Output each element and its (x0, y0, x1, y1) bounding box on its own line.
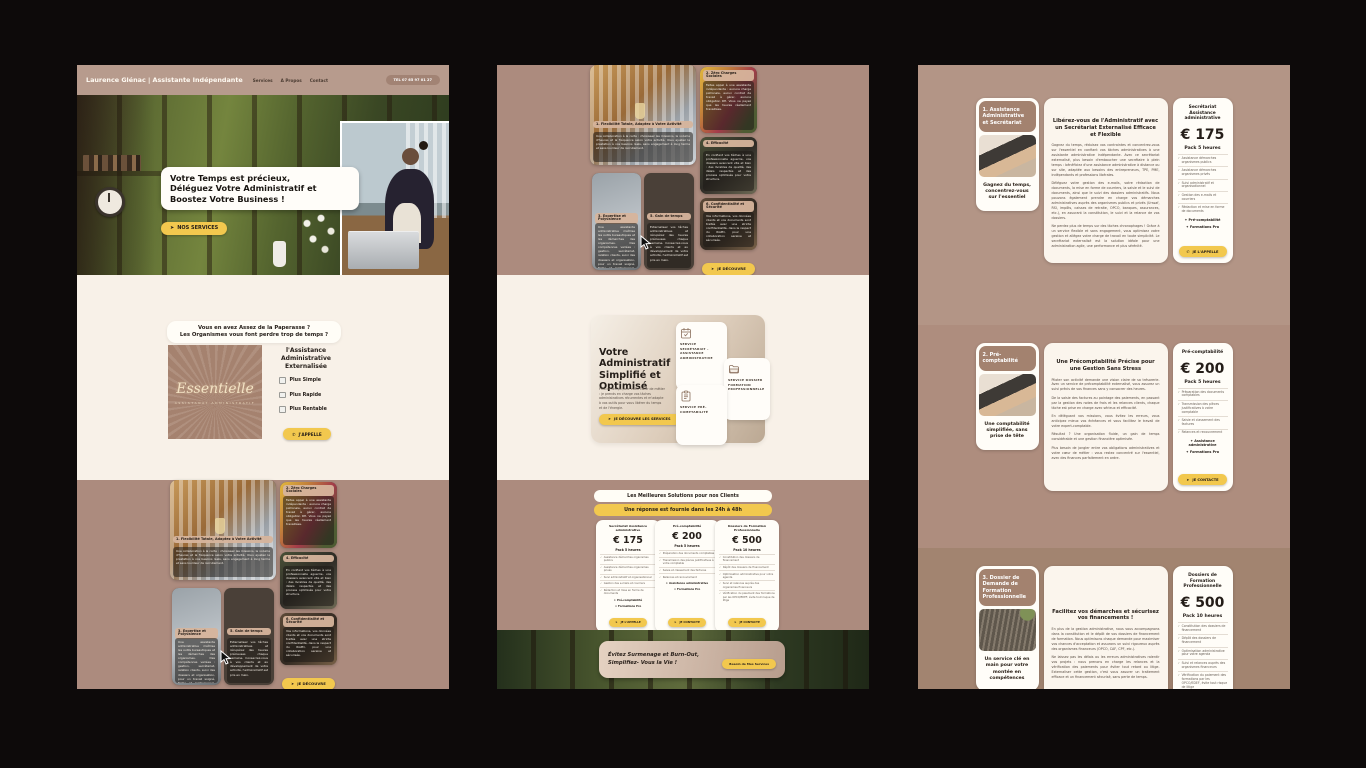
pricing-price: € 175 (600, 535, 656, 546)
keyboard-photo (979, 135, 1036, 177)
benefit-text: Vos informations, vos données clients et… (703, 212, 754, 247)
pricing-cta-button[interactable]: ➤JE CONTACTE (668, 618, 706, 627)
check-icon: ✓ (600, 566, 602, 572)
pricing-feature-list: ✓Assistance démarches organismes publics… (600, 554, 656, 597)
pricing-feature: ✓Dépôt des dossiers de financement (719, 564, 775, 571)
main-nav: Services A Propos Contact (253, 78, 328, 83)
benefit-card-1: 1. Flexibilité Totale, Adaptez à Votre A… (170, 480, 276, 580)
nav-contact[interactable]: Contact (310, 78, 328, 83)
benefit-row: Plus Simple (279, 377, 337, 384)
plane-icon: ➤ (1186, 478, 1189, 482)
mouse-cursor-icon (640, 235, 651, 250)
books-decor (83, 155, 141, 171)
je-decouvre-button[interactable]: ➤JE DÉCOUVRE (702, 263, 755, 275)
pricing-feature: ✓Rédaction et mise en forme de documents (1178, 203, 1228, 215)
pricing-extra: ✦ Formations Pro (659, 587, 715, 591)
plane-icon: ➤ (608, 417, 611, 421)
pricing-extra-list: ✦ Assistance administrative✦ Formations … (1178, 437, 1228, 454)
pricing-extra-list: ✦ Pré-comptabilité✦ Formations Pro (1178, 216, 1228, 229)
detail-left-card: 3. Dossier de Demande de Formation Profe… (976, 566, 1039, 689)
detail-paragraph: Résultat ? Une organisation fluide, un g… (1052, 432, 1160, 442)
pricing-feature: ✓Constitution des dossiers de financemen… (1178, 622, 1228, 634)
benefit-card-6: 6. Confidentialité et SécuritéVos inform… (280, 613, 337, 665)
pricing-card-secretariat: Secrétariat Assistance administrative € … (596, 520, 660, 632)
pricing-cta-wrap: ✆JE L'APPELLE (1179, 238, 1227, 258)
plane-icon: ➤ (711, 266, 714, 271)
benefit-title: 1. Flexibilité Totale, Adaptez à Votre A… (593, 121, 693, 128)
pricing-pack: Pack 10 heures (1178, 614, 1228, 619)
pricing-feature: ✓Optimisation administrative pour votre … (1178, 647, 1228, 659)
detail-paragraph: Ne perdez plus de temps sur des tâches c… (1052, 224, 1160, 249)
benefit-card-6: 6. Confidentialité et SécuritéVos inform… (700, 198, 757, 250)
detail-caption: Gagnez du temps, concentrez-vous sur l'e… (979, 177, 1036, 208)
benefit-label: Plus Rapide (290, 393, 322, 398)
benefit-title: 5. Gain de temps (227, 628, 271, 635)
pricing-feature-list: ✓Préparation des documents comptables✓Tr… (659, 550, 715, 580)
response-time-banner: Une réponse est fournie dans les 24h à 4… (594, 504, 772, 516)
je-lappelle-button[interactable]: ✆JE L'APPELLE (1179, 246, 1227, 257)
call-cta-wrap: ✆J'APPELLE (275, 421, 337, 441)
pricing-feature: ✓Transmission des pièces justificatives … (1178, 400, 1228, 416)
brand-title: Laurence Glénac | Assistante Indépendant… (86, 76, 243, 84)
solutions-heading: Les Meilleures Solutions pour nos Client… (594, 490, 772, 502)
benefit-row: Plus Rentable (279, 406, 337, 413)
detail-paragraph: Ne laissez pas les délais ou les erreurs… (1052, 655, 1160, 680)
benefit-text: Une assistante administrative maîtrise l… (595, 223, 638, 268)
pricing-feature: ✓Assistance démarches organismes privés (600, 564, 656, 574)
check-icon: ✓ (600, 576, 602, 579)
je-decouvre-services-label: JE DÉCOUVRE LES SERVICES (614, 417, 671, 421)
je-decouvre-button[interactable]: ➤JE DÉCOUVRE (282, 678, 335, 690)
detail-paragraph: De la saisie des factures au pointage de… (1052, 396, 1160, 411)
benefits-grid: 1. Flexibilité Totale, Adaptez à Votre A… (170, 480, 338, 689)
papers-photo (979, 609, 1036, 651)
screenshot-services: 1. Flexibilité Totale, Adaptez à Votre A… (497, 65, 869, 689)
check-icon: ✓ (1178, 157, 1181, 165)
detail-paragraphs: Piloter son activité demande une vision … (1052, 378, 1160, 465)
detail-caption: Une comptabilité simplifiée, sans prise … (979, 416, 1036, 447)
clock-decor (95, 187, 125, 217)
pricing-feature: ✓Vérification du paiement des formations… (1178, 671, 1228, 689)
check-icon: ✓ (1178, 391, 1181, 399)
laptop-decor (348, 232, 419, 269)
service-card-label: SERVICE DOSSIER FORMATION PROFESSIONNELL… (728, 378, 766, 392)
benefit-text: Une collaboration à la carte : choisisse… (173, 547, 273, 577)
pricing-cta-wrap: ➤JE L'APPELLE (609, 608, 647, 627)
benefit-text: Externalisez vos tâches administratives … (227, 638, 271, 683)
benefit-text: En confiant vos tâches à une professionn… (283, 566, 334, 606)
benefits-grid: 1. Flexibilité Totale, Adaptez à Votre A… (590, 65, 758, 275)
footer-cta-wrap: Besoin de Mes Services (722, 650, 776, 669)
detail-badge: 2. Pré-comptabilité (979, 346, 1036, 371)
check-icon: ✓ (1178, 182, 1181, 190)
benefit-title: 2. Zéro Charges Sociales (283, 485, 334, 496)
benefit-card-5: 5. Gain de tempsExternalisez vos tâches … (224, 588, 274, 685)
pricing-extra: ✦ Formations Pro (1178, 225, 1228, 229)
pricing-pack: Pack 5 heures (1178, 380, 1228, 385)
detail-paragraph: Plus besoin de jongler entre vos obligat… (1052, 446, 1160, 461)
benefits-collage-section: 1. Flexibilité Totale, Adaptez à Votre A… (77, 480, 449, 689)
pricing-extra: ✦ Assistance administrative (659, 581, 715, 585)
check-icon: ✓ (719, 566, 721, 569)
pricing-feature: ✓Suivi et relances auprès des organismes… (1178, 659, 1228, 671)
pricing-feature: ✓Suivi administratif et organisationnel (1178, 179, 1228, 191)
pricing-extra: ✦ Assistance administrative (1178, 439, 1228, 447)
check-icon: ✓ (719, 573, 721, 579)
check-icon: ✓ (1178, 419, 1181, 427)
benefit-text: Vos informations, vos données clients et… (283, 627, 334, 662)
mouse-cursor-icon (220, 650, 231, 665)
benefit-card-3: 3. Expertise et PolyvalenceUne assistant… (592, 173, 641, 270)
pricing-feature-list: ✓Préparation des documents comptables✓Tr… (1178, 388, 1228, 437)
detail-left-card: 1. Assistance Administrative et Secrétar… (976, 98, 1039, 211)
folder-icon (728, 363, 740, 375)
pricing-card-formation: Dossiers de Formation Professionnelle € … (715, 520, 779, 632)
check-icon: ✓ (1178, 403, 1181, 415)
detail-paragraph: Gagnez du temps, réduisez vos contrainte… (1052, 143, 1160, 178)
check-icon: ✓ (719, 582, 721, 588)
pricing-feature: ✓Saisie et classement des factures (1178, 416, 1228, 428)
pricing-pack: Pack 5 heures (600, 548, 656, 552)
pricing-extra: ✦ Pré-comptabilité (1178, 218, 1228, 222)
pricing-card-precompta: Pré-comptabilité € 200 Pack 5 heures ✓Pr… (655, 520, 719, 632)
pricing-feature: ✓Suivi et relances auprès des organismes… (719, 580, 775, 590)
checkbox-icon (279, 377, 286, 384)
hero-shelf-decor (77, 95, 155, 275)
check-icon: ✓ (1178, 194, 1181, 202)
jappelle-button[interactable]: ✆J'APPELLE (283, 428, 331, 440)
service-card-secretariat[interactable]: SERVICE SECRÉTARIAT - ASSISTANCE ADMINIS… (676, 322, 727, 390)
pricing-feature: ✓Constitution des dossiers de financemen… (719, 554, 775, 564)
benefit-card-5: 5. Gain de tempsExternalisez vos tâches … (644, 173, 694, 270)
footer-section: Évitez Surmenage et Burn-Out, Simplifiez… (497, 630, 869, 689)
nav-services[interactable]: Services (253, 78, 273, 83)
benefits-collage-section: 1. Flexibilité Totale, Adaptez à Votre A… (497, 65, 869, 275)
benefit-title: 6. Confidentialité et Sécurité (283, 616, 334, 627)
benefit-text: Une collaboration à la carte : choisisse… (593, 132, 693, 162)
benefit-label: Plus Rentable (290, 407, 327, 412)
intro-benefits: l'Assistance Administrative Externalisée… (275, 347, 337, 440)
pricing-price: € 500 (1178, 595, 1228, 611)
detail-description-card: Libérez-vous de l'Administratif avec un … (1044, 98, 1168, 263)
pricing-pack: Pack 5 heures (659, 544, 715, 548)
service-card-formation[interactable]: SERVICE DOSSIER FORMATION PROFESSIONNELL… (724, 358, 770, 420)
checkbox-icon (279, 406, 286, 413)
flowers-decor (299, 213, 339, 265)
pricing-name: Dossiers de Formation Professionnelle (719, 525, 775, 533)
nos-services-button[interactable]: ➤NOS SERVICES (161, 222, 227, 235)
plane-icon: ➤ (734, 620, 736, 624)
je-decouvre-services-button[interactable]: ➤JE DÉCOUVRE LES SERVICES (599, 414, 680, 425)
pricing-card-precompta: Pré-comptabilité € 200 Pack 5 heures ✓Pr… (1173, 343, 1233, 491)
plane-icon: ➤ (170, 225, 174, 231)
logo-tagline: ASSISTANAT ADMINISTRATIF (168, 401, 262, 405)
pricing-feature: ✓Gestion des e-mails et courriers (600, 580, 656, 587)
benefit-title: 6. Confidentialité et Sécurité (703, 201, 754, 212)
service-card-precompta[interactable]: SERVICE PRÉ-COMPTABILITÉ (676, 385, 727, 445)
detail-title: Une Précomptabilité Précise pour une Ges… (1052, 359, 1160, 373)
plane-icon: ➤ (674, 620, 676, 624)
jappelle-label: J'APPELLE (299, 432, 322, 437)
pricing-cta-button[interactable]: ➤JE L'APPELLE (609, 618, 647, 627)
logo-tile: Essentielle ASSISTANAT ADMINISTRATIF (168, 345, 262, 439)
pricing-section: Les Meilleures Solutions pour nos Client… (497, 480, 869, 630)
detail-badge: 1. Assistance Administrative et Secrétar… (979, 101, 1036, 132)
pricing-card-secretariat: Secrétariat Assistance administrative € … (1173, 98, 1233, 263)
pricing-feature: ✓Transmission des pièces justificatives … (659, 557, 715, 567)
hero-headline: Votre Temps est précieux, Déléguez Votre… (161, 167, 359, 210)
screenshot-homepage: Laurence Glénac | Assistante Indépendant… (77, 65, 449, 689)
detail-row-formation: 3. Dossier de Demande de Formation Profe… (918, 548, 1290, 689)
pricing-feature: ✓Vérification du paiement des formations… (719, 590, 775, 603)
plane-icon: ➤ (291, 681, 294, 686)
site-header: Laurence Glénac | Assistante Indépendant… (77, 65, 449, 95)
check-icon: ✓ (600, 582, 602, 585)
services-section: Votre Administratif Simplifié et Optimis… (497, 275, 869, 480)
pricing-pack: Pack 10 heures (719, 548, 775, 552)
benefit-text: Externalisez vos tâches administratives … (647, 223, 691, 268)
pricing-feature: ✓Relances et recouvrement (659, 573, 715, 580)
pricing-feature: ✓Préparation des documents comptables (1178, 388, 1228, 400)
intro-title: l'Assistance Administrative Externalisée (275, 347, 337, 371)
benefit-title: 4. Efficacité (283, 555, 334, 562)
pricing-feature-list: ✓Assistance démarches organismes publics… (1178, 154, 1228, 216)
je-decouvre-label: JE DÉCOUVRE (297, 681, 326, 686)
checkbox-icon (279, 392, 286, 399)
check-icon: ✓ (600, 589, 602, 595)
pricing-feature: ✓Rédaction et mise en forme de documents (600, 587, 656, 597)
je-decouvre-label: JE DÉCOUVRE (717, 266, 746, 271)
keyboard-photo (979, 374, 1036, 416)
check-icon: ✓ (659, 569, 661, 572)
pricing-feature-list: ✓Constitution des dossiers de financemen… (719, 554, 775, 603)
logo-essentielle: Essentielle (168, 381, 262, 397)
service-card-label: SERVICE SECRÉTARIAT - ASSISTANCE ADMINIS… (680, 342, 723, 360)
check-icon: ✓ (719, 592, 721, 602)
pricing-extra-list: ✦ Assistance administrative✦ Formations … (659, 580, 715, 591)
pricing-extra: ✦ Formations Pro (1178, 450, 1228, 454)
pricing-price: € 200 (659, 531, 715, 542)
pricing-price: € 175 (1178, 127, 1228, 143)
pricing-feature: ✓Optimisation administrative pour votre … (719, 570, 775, 580)
benefit-card-3: 3. Expertise et PolyvalenceUne assistant… (172, 588, 221, 685)
intro-section: Vous en avez Assez de la Paperasse ? Les… (77, 275, 449, 480)
pricing-name: Dossiers de Formation Professionnelle (1178, 573, 1228, 590)
pricing-feature: ✓Assistance démarches organismes publics (600, 554, 656, 564)
detail-paragraphs: Gagnez du temps, réduisez vos contrainte… (1052, 143, 1160, 252)
benefit-text: En confiant vos tâches à une professionn… (703, 151, 754, 191)
pricing-price: € 500 (719, 535, 775, 546)
pricing-feature: ✓Saisie et classement des factures (659, 567, 715, 574)
benefit-card-2: 2. Zéro Charges SocialesFaites appel à u… (280, 482, 337, 548)
pricing-cta-wrap: ➤JE CONTACTE (728, 608, 766, 627)
discover-cta-wrap: ➤JE DÉCOUVRE (702, 255, 755, 275)
footer-card: Évitez Surmenage et Burn-Out, Simplifiez… (599, 641, 785, 678)
benefit-title: 1. Flexibilité Totale, Adaptez à Votre A… (173, 536, 273, 543)
check-icon: ✓ (659, 576, 661, 579)
benefit-label: Plus Simple (290, 378, 322, 383)
detail-paragraph: En déléguant vos missions, vous évitez l… (1052, 414, 1160, 429)
pricing-cta-wrap: ➤JE CONTACTE (668, 608, 706, 627)
benefit-title: 2. Zéro Charges Sociales (703, 70, 754, 81)
pricing-extra-list: ✦ Pré-comptabilité✦ Formations Pro (600, 597, 656, 608)
pricing-pack: Pack 5 heures (1178, 146, 1228, 151)
check-icon: ✓ (659, 559, 661, 565)
detail-row-secretariat: 1. Assistance Administrative et Secrétar… (918, 65, 1290, 325)
plane-icon: ➤ (615, 620, 617, 624)
detail-paragraph: Piloter son activité demande une vision … (1052, 378, 1160, 393)
check-icon: ✓ (1178, 662, 1181, 670)
pricing-extra: ✦ Pré-comptabilité (600, 598, 656, 602)
check-icon: ✓ (1178, 637, 1181, 645)
detail-title: Libérez-vous de l'Administratif avec un … (1052, 118, 1160, 138)
phone-icon: ✆ (292, 432, 296, 437)
services-heading: Votre Administratif Simplifié et Optimis… (599, 347, 675, 392)
clipboard-icon (680, 390, 692, 402)
discover-cta-wrap: ➤JE DÉCOUVRE (282, 670, 335, 689)
pricing-feature: ✓Assistance démarches organismes privés (1178, 166, 1228, 178)
benefit-card-4: 4. EfficacitéEn confiant vos tâches à un… (700, 137, 757, 194)
pricing-feature-list: ✓Constitution des dossiers de financemen… (1178, 622, 1228, 689)
detail-description-card: Une Précomptabilité Précise pour une Ges… (1044, 343, 1168, 491)
check-icon: ✓ (1178, 625, 1181, 633)
benefit-title: 4. Efficacité (703, 140, 754, 147)
pricing-name: Secrétariat Assistance administrative (1178, 105, 1228, 122)
check-icon: ✓ (659, 552, 661, 555)
pricing-card-formation: Dossiers de Formation Professionnelle € … (1173, 566, 1233, 689)
service-card-label: SERVICE PRÉ-COMPTABILITÉ (680, 405, 723, 414)
pricing-name: Pré-comptabilité (1178, 350, 1228, 356)
detail-row-precompta: 2. Pré-comptabilité Une comptabilité sim… (918, 325, 1290, 548)
detail-left-card: 2. Pré-comptabilité Une comptabilité sim… (976, 343, 1039, 450)
phone-button[interactable]: TEL 07 65 97 01 27 (386, 75, 440, 85)
detail-caption: Un service clé en main pour votre montée… (979, 651, 1036, 688)
pricing-feature: ✓Dépôt des dossiers de financement (1178, 634, 1228, 646)
pricing-price: € 200 (1178, 361, 1228, 377)
check-icon: ✓ (1178, 206, 1181, 214)
detail-description-card: Facilitez vos démarches et sécurisez vos… (1044, 566, 1168, 689)
vase-decor (273, 241, 286, 267)
check-icon: ✓ (1178, 650, 1181, 658)
pricing-cta-button[interactable]: ➤JE CONTACTE (728, 618, 766, 627)
pricing-feature: ✓Gestion des e-mails et courriers (1178, 191, 1228, 203)
check-icon: ✓ (1178, 674, 1181, 689)
pricing-feature: ✓Relances et recouvrement (1178, 429, 1228, 437)
benefit-text: Faites appel à une assistante indépendan… (283, 496, 334, 545)
pricing-feature: ✓Assistance démarches organismes publics (1178, 154, 1228, 166)
hero-cta-wrap: ➤NOS SERVICES (161, 214, 227, 235)
detail-paragraphs: En plus de la gestion administrative, no… (1052, 627, 1160, 683)
benefit-row: Plus Rapide (279, 392, 337, 399)
benefit-card-2: 2. Zéro Charges SocialesFaites appel à u… (700, 67, 757, 133)
benefit-title: 5. Gain de temps (647, 213, 691, 220)
benefit-card-1: 1. Flexibilité Totale, Adaptez à Votre A… (590, 65, 696, 165)
nos-services-label: NOS SERVICES (177, 225, 218, 231)
benefit-card-4: 4. EfficacitéEn confiant vos tâches à un… (280, 552, 337, 609)
screenshot-pricing-details: 1. Assistance Administrative et Secrétar… (918, 65, 1290, 689)
phone-icon: ✆ (1187, 250, 1190, 254)
question-banner: Vous en avez Assez de la Paperasse ? Les… (167, 321, 341, 343)
nav-a-propos[interactable]: A Propos (281, 78, 302, 83)
check-icon: ✓ (600, 556, 602, 562)
check-icon: ✓ (1178, 169, 1181, 177)
check-icon: ✓ (1178, 431, 1181, 435)
hero-section: Votre Temps est précieux, Déléguez Votre… (77, 95, 449, 275)
check-icon: ✓ (719, 556, 721, 562)
pricing-name: Secrétariat Assistance administrative (600, 525, 656, 533)
detail-badge: 3. Dossier de Demande de Formation Profe… (979, 569, 1036, 606)
detail-paragraph: En plus de la gestion administrative, no… (1052, 627, 1160, 652)
footer-text: Évitez Surmenage et Burn-Out, Simplifiez… (608, 652, 714, 666)
benefit-text: Faites appel à une assistante indépendan… (703, 81, 754, 130)
detail-title: Facilitez vos démarches et sécurisez vos… (1052, 609, 1160, 623)
pricing-feature: ✓Préparation des documents comptables (659, 550, 715, 557)
calendar-check-icon (680, 327, 692, 339)
person-head (402, 148, 419, 165)
je-contacte-button[interactable]: ➤JE CONTACTE (1178, 474, 1226, 485)
pricing-feature: ✓Suivi administratif et organisationnel (600, 574, 656, 581)
pricing-cta-wrap: ➤JE CONTACTE (1178, 466, 1226, 486)
benefit-text: Une assistante administrative maîtrise l… (175, 638, 218, 683)
pricing-name: Pré-comptabilité (659, 525, 715, 529)
detail-paragraph: Déléguez votre gestion des e-mails, votr… (1052, 181, 1160, 221)
footer-cta-button[interactable]: Besoin de Mes Services (722, 659, 776, 669)
services-cta-wrap: ➤JE DÉCOUVRE LES SERVICES (599, 405, 680, 425)
